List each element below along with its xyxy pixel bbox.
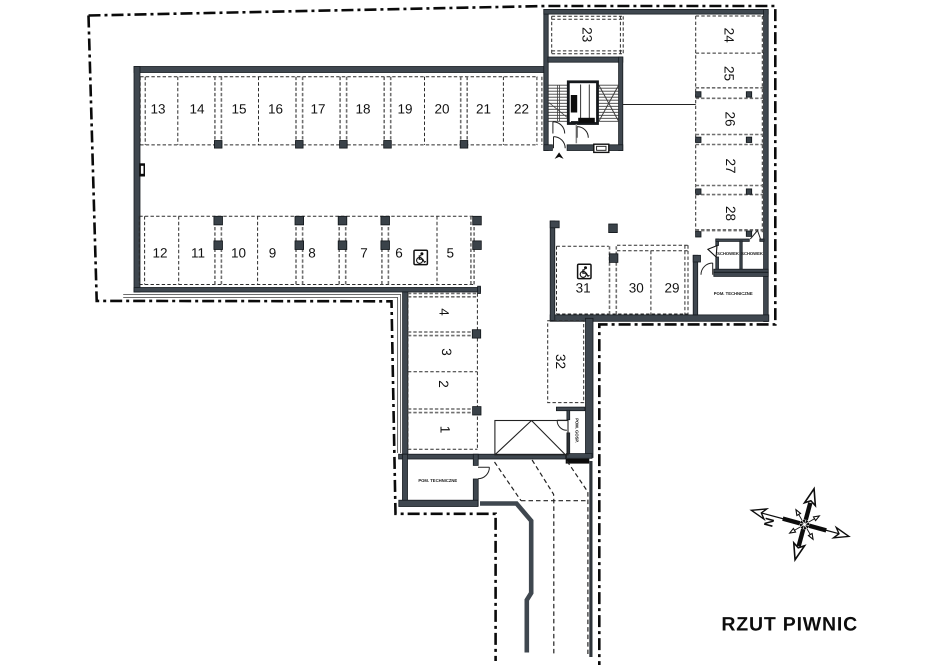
svg-text:20: 20 bbox=[434, 102, 449, 117]
svg-text:POM. TECHNICZNE: POM. TECHNICZNE bbox=[714, 291, 753, 296]
svg-text:25: 25 bbox=[721, 66, 736, 81]
svg-text:24: 24 bbox=[721, 28, 736, 44]
svg-text:6: 6 bbox=[395, 245, 403, 260]
svg-text:SCHOWEK: SCHOWEK bbox=[741, 251, 763, 256]
svg-text:RZUT PIWNIC: RZUT PIWNIC bbox=[721, 614, 858, 636]
svg-text:16: 16 bbox=[268, 102, 283, 117]
svg-text:11: 11 bbox=[191, 245, 205, 260]
svg-text:30: 30 bbox=[629, 280, 644, 295]
svg-text:7: 7 bbox=[360, 245, 368, 260]
svg-text:10: 10 bbox=[231, 245, 246, 260]
svg-text:32: 32 bbox=[553, 354, 568, 369]
svg-text:SCHOWEK: SCHOWEK bbox=[717, 251, 739, 256]
svg-text:12: 12 bbox=[152, 245, 167, 260]
svg-text:5: 5 bbox=[447, 245, 455, 260]
svg-text:31: 31 bbox=[576, 280, 591, 295]
svg-text:27: 27 bbox=[723, 158, 738, 173]
svg-text:14: 14 bbox=[189, 102, 205, 117]
svg-text:19: 19 bbox=[397, 102, 412, 117]
svg-text:1: 1 bbox=[437, 426, 452, 434]
svg-text:3: 3 bbox=[439, 348, 454, 356]
svg-text:4: 4 bbox=[436, 308, 451, 316]
svg-text:2: 2 bbox=[436, 380, 451, 388]
svg-text:15: 15 bbox=[231, 102, 246, 117]
svg-text:21: 21 bbox=[476, 102, 491, 117]
svg-text:POM. TECHNICZNE: POM. TECHNICZNE bbox=[418, 478, 457, 483]
svg-text:18: 18 bbox=[355, 102, 370, 117]
svg-text:22: 22 bbox=[514, 102, 529, 117]
svg-text:8: 8 bbox=[308, 245, 316, 260]
svg-text:13: 13 bbox=[150, 102, 165, 117]
svg-text:POM. GOSP.: POM. GOSP. bbox=[575, 418, 580, 443]
svg-text:29: 29 bbox=[664, 280, 679, 295]
svg-text:23: 23 bbox=[579, 27, 594, 42]
svg-text:26: 26 bbox=[722, 111, 737, 126]
svg-text:17: 17 bbox=[310, 102, 325, 117]
svg-text:9: 9 bbox=[269, 245, 277, 260]
svg-text:28: 28 bbox=[723, 206, 738, 221]
